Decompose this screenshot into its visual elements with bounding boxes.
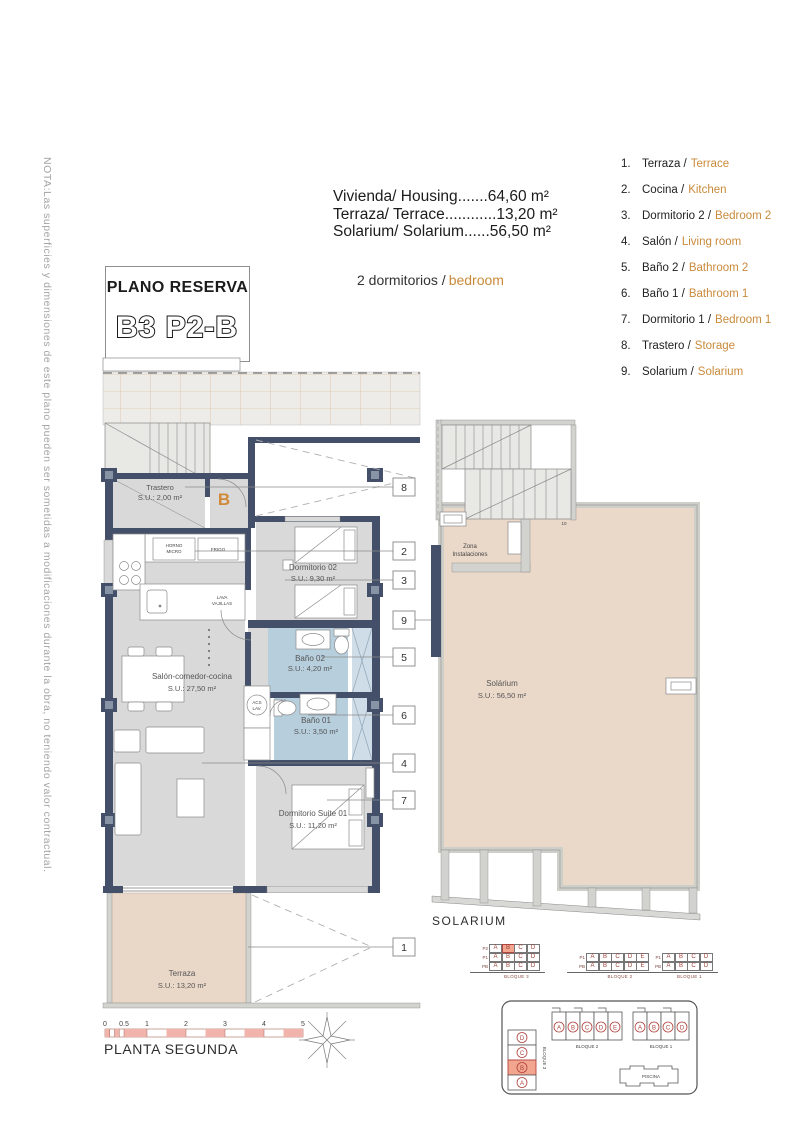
label-lav: LAV. — [252, 706, 261, 711]
callout-8: 8 — [401, 482, 407, 494]
unit-cell: D — [527, 953, 540, 962]
unit-cell: E — [636, 953, 649, 962]
unit-cell: B — [675, 953, 688, 962]
floor-label: P1 — [574, 953, 585, 962]
callout-5: 5 — [401, 652, 407, 664]
unit-cell: C — [687, 962, 700, 971]
block-label: BLOQUE 3 — [488, 974, 545, 979]
room-area-trastero: S.U.: 2,00 m² — [138, 493, 183, 502]
label-acs: ACS — [252, 700, 261, 705]
label-frigo: FRIGO — [211, 547, 226, 552]
room-label-trastero: Trastero — [146, 483, 174, 492]
solarium-caption: SOLARIUM — [432, 914, 507, 928]
unit-cell: D — [700, 962, 713, 971]
stack-table-bloque2: P1ABCDE PBABCDE BLOQUE 2 — [574, 953, 655, 979]
site-b1-unit: A — [638, 1026, 642, 1032]
unit-cell: C — [514, 962, 527, 971]
room-area-dorm02: S.U.: 9,30 m² — [291, 574, 336, 583]
unit-cell: C — [514, 944, 527, 953]
site-b1-label: BLOQUE 1 — [650, 1044, 673, 1049]
stack-table-bloque1: P1ABCD PBABCD BLOQUE 1 — [650, 953, 718, 979]
stair-step-number: 10 — [561, 521, 567, 526]
room-label-solarium: Solárium — [486, 679, 518, 688]
room-area-terraza: S.U.: 13,20 m² — [158, 981, 207, 990]
floor-label: PB — [574, 962, 585, 971]
site-b3-unit: D — [520, 1036, 525, 1042]
room-area-bano02: S.U.: 4,20 m² — [288, 664, 333, 673]
callout-3: 3 — [401, 575, 407, 587]
zona-label-2: Instalaciones — [452, 552, 487, 558]
room-label-salon: Salón-comedor-cocina — [152, 672, 233, 681]
unit-cell: D — [527, 962, 540, 971]
room-area-suite: S.U.: 11,20 m² — [289, 821, 337, 830]
unit-cell: C — [687, 953, 700, 962]
scale-tick-3: 3 — [223, 1021, 227, 1028]
room-area-bano01: S.U.: 3,50 m² — [294, 727, 339, 736]
scale-bar: 0 0.5 1 2 3 4 5 — [103, 1021, 305, 1037]
unit-cell: A — [489, 962, 502, 971]
scale-tick-0: 0 — [103, 1021, 107, 1028]
floor-label: P2 — [477, 944, 488, 953]
site-b2-unit: B — [571, 1026, 575, 1032]
unit-cell: A — [662, 962, 675, 971]
entrance-unit-letter: B — [218, 490, 230, 509]
block-label: BLOQUE 1 — [661, 974, 718, 979]
scale-tick-05: 0.5 — [119, 1021, 129, 1028]
unit-cell-highlighted: B — [502, 944, 515, 953]
unit-cell: C — [611, 953, 624, 962]
room-area-solarium: S.U.: 56,50 m² — [478, 691, 527, 700]
floor-label: PB — [477, 962, 488, 971]
unit-cell: D — [700, 953, 713, 962]
site-b2-unit: E — [613, 1026, 617, 1032]
label-horno: HORNO — [166, 543, 183, 548]
block-label: BLOQUE 2 — [585, 974, 655, 979]
unit-cell: C — [611, 962, 624, 971]
label-vajillas: VAJILLAS — [212, 601, 232, 606]
unit-cell: A — [586, 962, 599, 971]
callout-2: 2 — [401, 546, 407, 558]
floor-label: P1 — [650, 953, 661, 962]
site-b3-label: BLOQUE 3 — [542, 1047, 547, 1070]
callout-6: 6 — [401, 710, 407, 722]
unit-cell: B — [502, 953, 515, 962]
zona-label-1: Zona — [463, 544, 477, 550]
site-b2-label: BLOQUE 2 — [576, 1044, 599, 1049]
unit-cell: A — [586, 953, 599, 962]
unit-cell: D — [624, 962, 637, 971]
label-micro: MICRO — [167, 549, 182, 554]
unit-cell: E — [636, 962, 649, 971]
compass-rose-icon — [299, 1012, 355, 1068]
scale-tick-1: 1 — [145, 1021, 149, 1028]
unit-cell: B — [502, 962, 515, 971]
unit-cell: A — [662, 953, 675, 962]
floor-label: P1 — [477, 953, 488, 962]
callout-7: 7 — [401, 795, 407, 807]
label-lava: LAVA — [217, 595, 228, 600]
room-label-terraza: Terraza — [169, 969, 196, 978]
plan-sheet: NOTA:Las superficies y dimensiones de es… — [0, 0, 800, 1133]
site-b3-unit-highlighted: B — [520, 1066, 524, 1072]
stack-table-bloque3: P2ABCD P1ABCD PBABCD BLOQUE 3 — [477, 944, 545, 979]
callout-boxes: 8 2 3 9 5 6 4 7 1 — [393, 478, 415, 956]
site-b1-unit: B — [652, 1026, 656, 1032]
acs-closet — [244, 686, 270, 760]
floor-caption: PLANTA SEGUNDA — [104, 1041, 238, 1057]
site-key-plan: A B C D E BLOQUE 2 A B C D BLOQUE 1 — [502, 1001, 697, 1094]
scale-tick-4: 4 — [262, 1021, 266, 1028]
room-label-suite: Dormitorio Suite 01 — [279, 809, 348, 818]
scale-tick-5: 5 — [301, 1021, 305, 1028]
solarium-plan: 10 Zona Instalaciones Solárium S.U.: 56,… — [431, 420, 700, 928]
siteplan-pool: PISCINA — [620, 1066, 678, 1086]
callout-4: 4 — [401, 758, 407, 770]
site-b2-unit: A — [557, 1026, 561, 1032]
unit-cell: C — [514, 953, 527, 962]
room-label-bano01: Baño 01 — [301, 716, 331, 725]
unit-cell: B — [599, 962, 612, 971]
floor-label: PB — [650, 962, 661, 971]
room-area-salon: S.U.: 27,50 m² — [168, 684, 217, 693]
unit-cell: D — [624, 953, 637, 962]
room-label-bano02: Baño 02 — [295, 654, 325, 663]
site-b3-unit: C — [520, 1051, 525, 1057]
pool-label: PISCINA — [642, 1074, 660, 1079]
site-b1-unit: D — [680, 1026, 685, 1032]
stairs-main — [105, 423, 210, 479]
unit-cell: B — [599, 953, 612, 962]
room-label-dorm02: Dormitorio 02 — [289, 563, 338, 572]
site-b2-unit: D — [599, 1026, 604, 1032]
scale-tick-2: 2 — [184, 1021, 188, 1028]
site-b3-unit: A — [520, 1081, 524, 1087]
site-b2-unit: C — [585, 1026, 590, 1032]
unit-cell: A — [489, 944, 502, 953]
unit-cell: A — [489, 953, 502, 962]
site-b1-unit: C — [666, 1026, 671, 1032]
callout-9: 9 — [401, 615, 407, 627]
callout-1: 1 — [401, 942, 407, 954]
unit-cell: D — [527, 944, 540, 953]
unit-cell: B — [675, 962, 688, 971]
